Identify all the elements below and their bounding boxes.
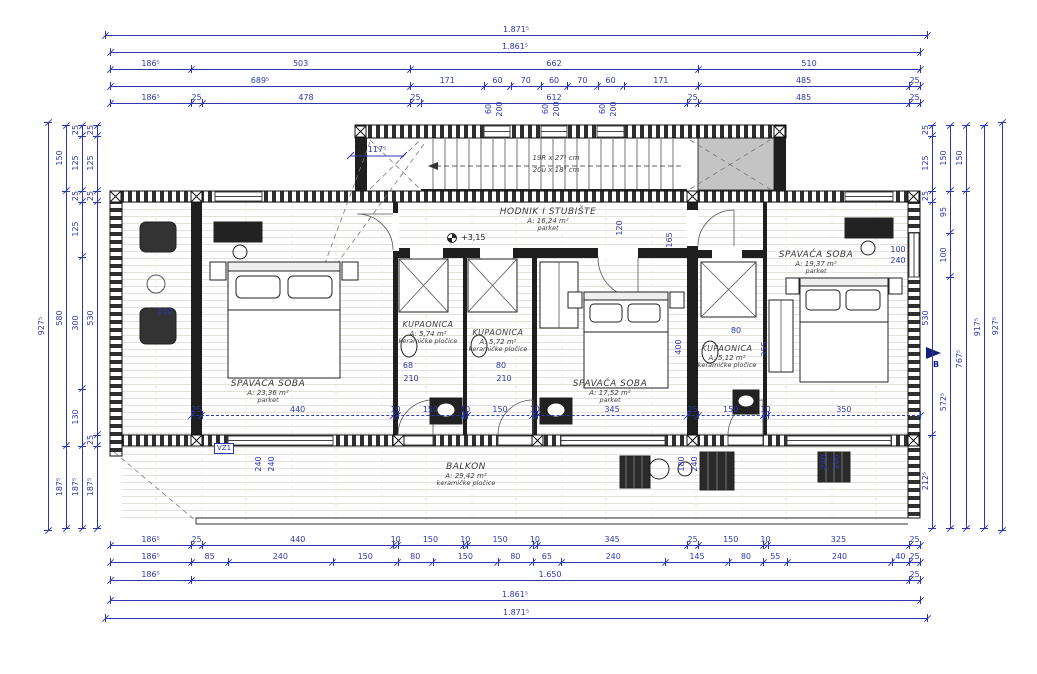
dim-label: 530 [922, 311, 930, 326]
dim-label: 510 [801, 60, 816, 68]
dim-graphic [110, 558, 111, 566]
dim-label: 186⁵ [141, 60, 159, 68]
dim-label: 689⁵ [251, 77, 269, 85]
stair-top-wall-right [698, 125, 786, 138]
dim-label: 485 [796, 94, 811, 102]
dim-graphic [950, 125, 951, 528]
dim-graphic [78, 446, 86, 447]
dim-label: 503 [293, 60, 308, 68]
room-rname: SPAVAĆA SOBA [573, 379, 648, 389]
dim-label: 767⁵ [956, 350, 964, 368]
dim-label: 25 [191, 536, 201, 544]
dim-graphic [410, 65, 411, 73]
dim-label: 150 [492, 406, 507, 414]
dim-label: 240 [606, 553, 621, 561]
dim-label: 440 [290, 406, 305, 414]
dim-label: 580 [56, 311, 64, 326]
dim-label: 150 [56, 150, 64, 165]
dim-graphic [191, 65, 192, 73]
dim-label: 80 [741, 553, 751, 561]
dim-label: 350 [836, 406, 851, 414]
dim-graphic [93, 446, 101, 447]
dim-label: 25 [72, 125, 80, 135]
room-label-7: BALKONA: 29,42 m²keramičke pločice [437, 462, 496, 487]
dim-graphic [892, 558, 893, 566]
dim-graphic [561, 558, 562, 566]
dim-graphic [333, 558, 334, 566]
dim-label: 1.650 [539, 571, 562, 579]
dim-graphic [966, 125, 967, 528]
dim-graphic [110, 99, 111, 107]
dim-graphic [598, 82, 599, 90]
dim-label: 662 [546, 60, 561, 68]
dim-label: 186⁵ [141, 571, 159, 579]
dim-label: 200 [610, 101, 618, 116]
dim-graphic [110, 541, 111, 549]
dim-graphic [93, 136, 101, 137]
dim-label: 150 [940, 150, 948, 165]
dim-label: 210 [403, 375, 418, 383]
dim-graphic [980, 125, 988, 126]
dim-graphic [920, 48, 921, 56]
dim-graphic [202, 411, 203, 419]
dim-label: 200 [496, 101, 504, 116]
dim-label: 40 [895, 553, 905, 561]
dim-label: 1.861⁵ [502, 43, 528, 51]
dim-label: 65 [542, 553, 552, 561]
dim-graphic [62, 446, 70, 447]
dim-label: 60 [599, 104, 607, 114]
dim-label: 1.871⁵ [503, 26, 529, 34]
dim-graphic [228, 558, 229, 566]
dim-label: 25 [87, 125, 95, 135]
dim-graphic [980, 528, 988, 529]
dim-graphic [421, 99, 422, 107]
dim-label: 125 [922, 156, 930, 171]
dim-label: 150 [423, 406, 438, 414]
dim-label: 530 [87, 311, 95, 326]
dim-label: 150 [723, 536, 738, 544]
dim-label: 150 [423, 536, 438, 544]
dim-label: 25 [191, 406, 201, 414]
dim-graphic [920, 541, 921, 549]
dim-graphic [920, 99, 921, 107]
dim-graphic [920, 82, 921, 90]
dim-graphic [191, 415, 920, 416]
dim-graphic [920, 558, 921, 566]
dim-label: 80 [496, 362, 506, 370]
dim-label: 440 [290, 536, 305, 544]
dim-label: 25 [87, 191, 95, 201]
dim-label: 10 [460, 536, 470, 544]
dim-graphic [984, 125, 985, 528]
dim-label: 25 [909, 536, 919, 544]
room-label-5: KUPAONICAA: 5,12 m²keramičke pločice [698, 344, 757, 369]
dim-graphic [946, 233, 954, 234]
dim-label: 117⁵ [368, 146, 386, 154]
dim-label: 240 [255, 456, 263, 471]
dim-graphic [998, 122, 1006, 123]
dim-graphic [78, 202, 86, 203]
room-rname: BALKON [437, 462, 496, 472]
dim-label: 180 [678, 456, 686, 471]
dim-graphic [1002, 122, 1003, 530]
room-rfloor: parket [779, 268, 854, 275]
dim-graphic [105, 618, 927, 619]
dim-label: 240 [833, 454, 841, 469]
room-rfloor: parket [500, 225, 596, 232]
dim-label: 25 [191, 94, 201, 102]
room-label-0: SPAVAĆA SOBAA: 23,36 m²parket [231, 379, 306, 404]
dim-graphic [191, 576, 192, 584]
dim-label: 300 [72, 315, 80, 330]
room-rfloor: keramičke pločice [399, 338, 458, 345]
dim-label: 95 [940, 207, 948, 217]
room-rfloor: keramičke pločice [469, 346, 528, 353]
dim-graphic [93, 202, 101, 203]
dim-graphic [410, 82, 411, 90]
dim-label: 100 [157, 308, 172, 316]
dim-graphic [105, 35, 927, 36]
dim-label: 125 [72, 222, 80, 237]
room-rname: KUPAONICA [698, 344, 757, 354]
dim-graphic [78, 528, 86, 529]
left-outer-wall [110, 202, 122, 456]
dim-graphic [110, 596, 111, 604]
dim-label: 187⁵ [87, 478, 95, 496]
dim-label: 240 [691, 456, 699, 471]
room-rfloor: keramičke pločice [437, 480, 496, 487]
dim-graphic [62, 528, 70, 529]
dim-graphic [78, 257, 86, 258]
dim-graphic [665, 558, 666, 566]
dim-label: 85 [205, 553, 215, 561]
dim-graphic [541, 82, 542, 90]
dim-label: 1.871⁵ [503, 609, 529, 617]
dim-label: 145 [689, 553, 704, 561]
room-rfloor: parket [573, 397, 648, 404]
dim-label: 100 [890, 246, 905, 254]
dim-graphic [928, 202, 936, 203]
room-rname: KUPAONICA [399, 320, 458, 330]
dim-graphic [66, 125, 67, 528]
dim-label: 55 [770, 553, 780, 561]
room-rname: SPAVAĆA SOBA [231, 379, 306, 389]
dim-graphic [110, 562, 920, 563]
dim-graphic [920, 411, 921, 419]
dim-label: 25 [410, 94, 420, 102]
dim-label: 25 [688, 406, 698, 414]
dim-graphic [44, 530, 52, 531]
dim-label: 171 [440, 77, 455, 85]
dim-label: 400 [675, 339, 683, 354]
dim-graphic [498, 558, 499, 566]
floor-plan-page: 19R x 27⁵ cm 20u x 18⁵ cm +3,15 VZ1 B 1.… [0, 0, 1037, 674]
dim-graphic [920, 576, 921, 584]
dim-label: 171 [653, 77, 668, 85]
dim-graphic [202, 541, 203, 549]
dim-graphic [698, 99, 699, 107]
dim-label: 10 [530, 406, 540, 414]
dim-graphic [93, 528, 101, 529]
dim-label: 60 [549, 77, 559, 85]
dim-graphic [946, 125, 954, 126]
dim-graphic [44, 122, 52, 123]
dim-label: 25 [688, 536, 698, 544]
dim-label: 572⁵ [940, 393, 948, 411]
dim-label: 186⁵ [141, 553, 159, 561]
room-rfloor: parket [231, 397, 306, 404]
room-label-4: SPAVAĆA SOBAA: 17,52 m²parket [573, 379, 648, 404]
dim-graphic [110, 65, 111, 73]
dim-graphic [62, 125, 70, 126]
dim-graphic [110, 600, 920, 601]
dim-label: 187⁵ [72, 478, 80, 496]
dim-graphic [110, 52, 920, 53]
stair-note-line2: 20u x 18⁵ cm [533, 166, 580, 174]
dim-label: 70 [577, 77, 587, 85]
dim-graphic [927, 614, 928, 622]
dim-label: 10 [530, 536, 540, 544]
dim-label: 186⁵ [141, 94, 159, 102]
dim-graphic [928, 528, 936, 529]
dim-graphic [105, 31, 106, 39]
stair-note-line1: 19R x 27⁵ cm [533, 154, 580, 162]
dim-label: 60 [485, 104, 493, 114]
dim-graphic [202, 99, 203, 107]
room-rfloor: keramičke pločice [698, 362, 757, 369]
dim-label: 240 [890, 257, 905, 265]
dim-graphic [110, 545, 920, 546]
dim-label: 130 [72, 409, 80, 424]
dim-label: 120 [616, 220, 624, 235]
wall-tag: VZ1 [214, 443, 234, 454]
dim-label: 60 [542, 104, 550, 114]
dim-label: 200 [553, 101, 561, 116]
dim-label: 150 [956, 150, 964, 165]
dim-label: 10 [391, 536, 401, 544]
dim-graphic [105, 614, 106, 622]
dim-label: 165 [666, 232, 674, 247]
dim-label: 210 [496, 375, 511, 383]
dim-graphic [78, 136, 86, 137]
dim-label: 485 [796, 77, 811, 85]
dim-label: 187⁵ [56, 478, 64, 496]
dim-label: 25 [922, 125, 930, 135]
dim-graphic [110, 576, 111, 584]
dim-label: 10 [760, 536, 770, 544]
dim-graphic [110, 86, 920, 87]
dim-label: 10 [760, 406, 770, 414]
dim-graphic [928, 136, 936, 137]
dim-label: 150 [358, 553, 373, 561]
dim-graphic [927, 31, 928, 39]
dim-label: 240 [832, 553, 847, 561]
dim-label: 80 [731, 327, 741, 335]
dim-graphic [920, 596, 921, 604]
dim-graphic [928, 435, 936, 436]
dim-label: 25 [909, 94, 919, 102]
dim-graphic [698, 541, 699, 549]
dim-label: 150 [492, 536, 507, 544]
dim-label: 927⁵ [38, 317, 46, 335]
dim-label: 25 [72, 191, 80, 201]
dim-graphic [398, 558, 399, 566]
dim-label: 80 [510, 553, 520, 561]
section-marker-icon [926, 347, 941, 359]
dim-graphic [110, 580, 920, 581]
dim-graphic [82, 125, 83, 528]
dim-graphic [998, 530, 1006, 531]
dim-label: 240 [273, 553, 288, 561]
dim-graphic [920, 65, 921, 73]
level-marker-text: +3,15 [461, 233, 486, 242]
dim-graphic [484, 82, 485, 90]
dim-graphic [97, 125, 98, 528]
dim-label: 125 [87, 156, 95, 171]
dim-label: 25 [909, 77, 919, 85]
balcony-floor [122, 446, 908, 520]
room-rname: KUPAONICA [469, 328, 528, 338]
dim-label: 240 [820, 454, 828, 469]
dim-graphic [763, 558, 764, 566]
stairwell-floor [421, 138, 687, 191]
dim-graphic [729, 558, 730, 566]
dim-label: 150 [723, 406, 738, 414]
dim-graphic [698, 65, 699, 73]
dim-label: 25 [909, 571, 919, 579]
dim-label: 68 [403, 362, 413, 370]
stair-top-wall [355, 125, 698, 138]
dim-graphic [78, 389, 86, 390]
dim-label: 927⁵ [992, 317, 1000, 335]
dim-label: 150 [458, 553, 473, 561]
dim-graphic [110, 82, 111, 90]
room-rname: HODNIK I STUBIŠTE [500, 207, 596, 217]
dim-label: 917⁵ [974, 317, 982, 335]
dim-label: 60 [492, 77, 502, 85]
dim-graphic [191, 558, 192, 566]
dim-label: 478 [298, 94, 313, 102]
dim-label: 345 [604, 406, 619, 414]
dim-label: 100 [940, 247, 948, 262]
dim-graphic [946, 277, 954, 278]
level-marker-symbol [448, 234, 457, 243]
dim-label: 355 [761, 341, 769, 356]
dim-label: 240 [268, 456, 276, 471]
dim-graphic [433, 558, 434, 566]
dim-label: 70 [521, 77, 531, 85]
dim-graphic [946, 191, 954, 192]
dim-label: 212⁵ [922, 472, 930, 490]
dim-label: 10 [460, 406, 470, 414]
dim-graphic [962, 191, 970, 192]
shaded-block [698, 138, 774, 190]
dim-graphic [48, 122, 49, 530]
dim-graphic [698, 411, 699, 419]
dim-graphic [932, 125, 933, 528]
dim-label: 25 [909, 553, 919, 561]
dim-label: 10 [390, 406, 400, 414]
dim-graphic [698, 82, 699, 90]
room-label-1: KUPAONICAA: 5,74 m²keramičke pločice [399, 320, 458, 345]
dim-label: 325 [831, 536, 846, 544]
dim-label: 186⁵ [141, 536, 159, 544]
dim-label: 25 [87, 435, 95, 445]
dim-graphic [962, 125, 970, 126]
dim-graphic [624, 82, 625, 90]
dim-label: 345 [605, 536, 620, 544]
dim-graphic [110, 69, 920, 70]
dim-label: 25 [922, 191, 930, 201]
dim-graphic [511, 82, 512, 90]
dim-graphic [946, 528, 954, 529]
room-rname: SPAVAĆA SOBA [779, 250, 854, 260]
dim-graphic [110, 48, 111, 56]
dim-label: 125 [72, 156, 80, 171]
dim-graphic [533, 558, 534, 566]
dim-label: 80 [410, 553, 420, 561]
dim-label: 60 [606, 77, 616, 85]
dim-graphic [567, 82, 568, 90]
room-label-2: KUPAONICAA: 5,72 m²keramičke pločice [469, 328, 528, 353]
dim-graphic [110, 103, 920, 104]
dim-graphic [787, 558, 788, 566]
dim-label: 1.861⁵ [502, 591, 528, 599]
dim-graphic [962, 528, 970, 529]
dim-label: 25 [688, 94, 698, 102]
room-label-3: HODNIK I STUBIŠTEA: 16,24 m²parket [500, 207, 596, 232]
dim-graphic [62, 191, 70, 192]
room-label-6: SPAVAĆA SOBAA: 19,37 m²parket [779, 250, 854, 275]
section-marker-label: B [933, 360, 939, 369]
